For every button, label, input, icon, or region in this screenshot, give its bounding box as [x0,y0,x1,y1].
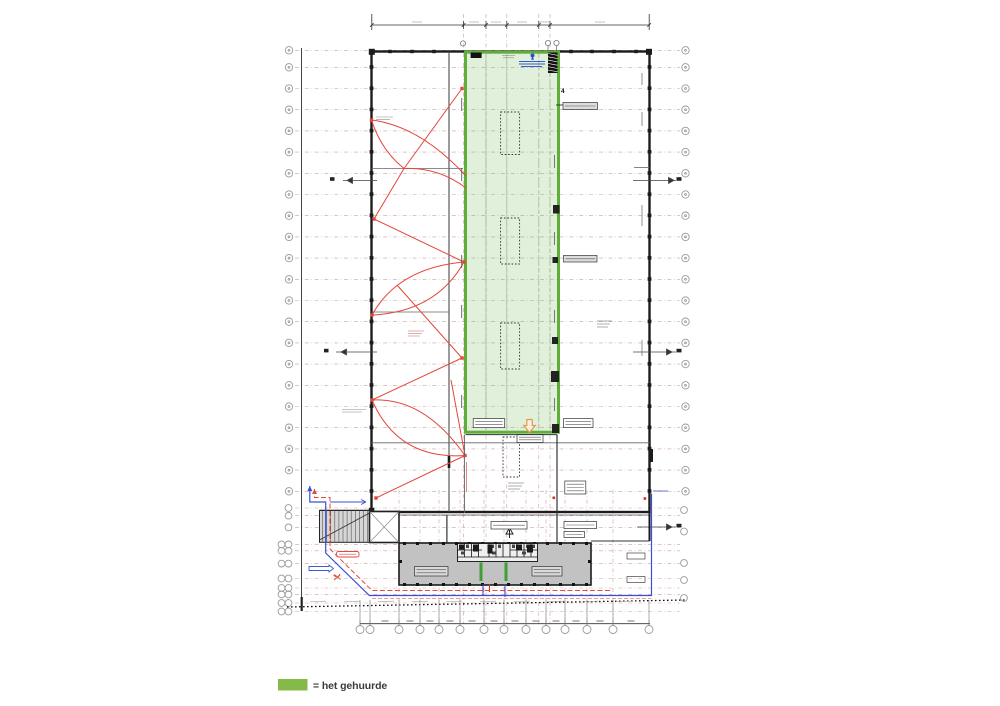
svg-text:= het gehuurde: = het gehuurde [313,680,387,692]
svg-text:4: 4 [561,88,565,95]
